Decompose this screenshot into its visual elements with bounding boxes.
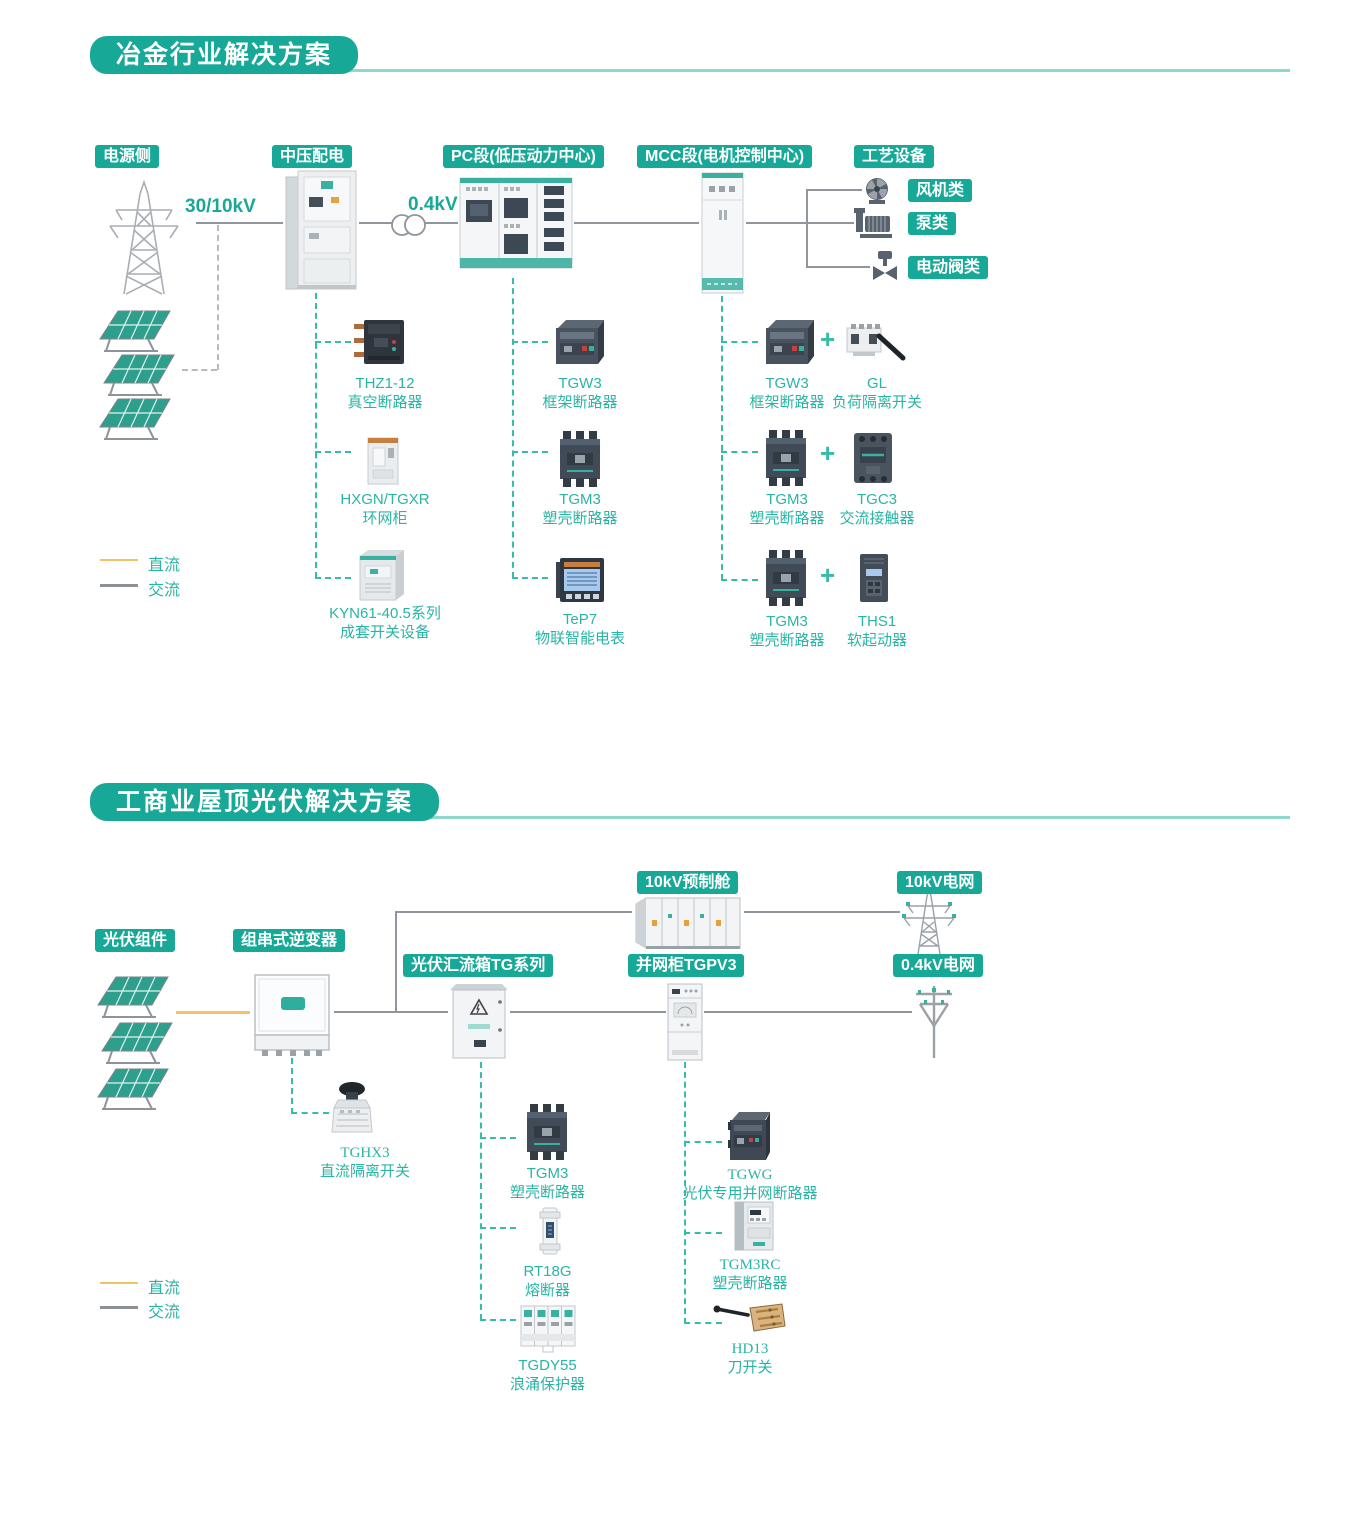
dashed-teal-connector [291,1058,293,1114]
product-model: TeP7 [510,610,650,629]
transformer-symbol [386,212,432,238]
product-label: HXGN/TGXR 环网柜 [320,490,450,528]
product-model: TGM3RC [685,1256,815,1275]
product-desc: 刀开关 [685,1359,815,1378]
dc-wire [176,1011,250,1014]
stage-label-pv-combiner-box: 光伏汇流箱TG系列 [403,954,553,977]
product-model: THS1 [812,612,942,631]
stage-label-grid-connection-cabinet: 并网柜TGPV3 [628,954,744,977]
vacuum-breaker-image [352,318,410,366]
pc-switchgear-image [458,172,574,274]
solar-panel-icon [96,972,174,1020]
ac-wire [746,222,806,224]
product-label: TGM3 塑壳断路器 [480,1164,615,1202]
ac-wire-riser [395,911,397,1011]
solar-panel-icon [102,350,180,398]
legend-dc-label: 直流 [148,1274,180,1298]
soft-starter-image [858,552,890,604]
pv-combiner-box-image [448,980,510,1062]
dashed-teal-connector [315,451,351,453]
product-desc: 负荷隔离开关 [812,393,942,412]
ac-wire [806,266,870,268]
dashed-teal-connector [721,341,758,343]
product-label: THZ1-12 真空断路器 [320,374,450,412]
product-label: TGM3 塑壳断路器 [515,490,645,528]
product-desc: 软起动器 [812,631,942,650]
dashed-gray-connector [217,225,219,370]
frame-breaker-image [552,318,608,366]
ring-main-unit-image [366,434,400,486]
stage-label-mcc-section: MCC段(电机控制中心) [637,145,812,168]
dashed-teal-connector [721,296,723,580]
dashed-teal-connector [315,341,351,343]
product-model: TGM3 [480,1164,615,1183]
dashed-teal-connector [721,579,758,581]
product-label: TGC3 交流接触器 [812,490,942,528]
product-label: TGHX3 直流隔离开关 [300,1144,430,1182]
legend-ac-label: 交流 [148,576,180,600]
dashed-teal-connector [512,278,514,578]
product-label: TGM3RC 塑壳断路器 [685,1256,815,1294]
transmission-tower-icon [88,178,200,296]
motor-valve-icon [870,250,900,284]
legend-ac-label: 交流 [148,1298,180,1322]
ac-wire [704,1011,912,1013]
product-label: TeP7 物联智能电表 [510,610,650,648]
product-model: THZ1-12 [320,374,450,393]
product-model: KYN61-40.5系列 [310,604,460,623]
surge-protector-image [519,1302,577,1354]
product-label: KYN61-40.5系列 成套开关设备 [310,604,460,642]
dashed-teal-connector [684,1232,722,1234]
pump-icon [854,206,894,240]
product-desc: 成套开关设备 [310,623,460,642]
product-label: RT18G 熔断器 [480,1262,615,1300]
ac-contactor-image [852,430,894,486]
legend-dc-label: 直流 [148,551,180,575]
product-desc: 塑壳断路器 [685,1275,815,1294]
product-desc: 塑壳断路器 [515,509,645,528]
knife-switch-image [712,1300,788,1336]
residual-current-breaker-image [731,1200,777,1252]
stage-label-string-inverter: 组串式逆变器 [233,929,345,952]
dashed-gray-connector [182,369,217,371]
stage-label-pc-section: PC段(低压动力中心) [443,145,604,168]
ac-wire [334,1011,448,1013]
solar-panel-icon [100,1018,178,1066]
stage-label-mv-distribution: 中压配电 [272,145,352,168]
product-label: TGW3 框架断路器 [515,374,645,412]
ac-wire [196,222,283,224]
product-model: TGW3 [515,374,645,393]
transmission-tower-icon [900,888,958,956]
dashed-teal-connector [480,1319,516,1321]
stage-label-power-source: 电源侧 [95,145,159,168]
solar-panel-icon [98,306,176,354]
product-model: TGWG [660,1166,840,1185]
ac-wire [510,1011,666,1013]
section1-title-badge: 冶金行业解决方案 [90,36,358,74]
stage-label-10kv-grid: 10kV电网 [897,871,982,894]
product-model: GL [812,374,942,393]
solar-panel-icon [98,394,176,442]
switchgear-set-image [356,548,406,602]
stage-label-prefab-cabin: 10kV预制舱 [637,871,738,894]
mv-switchgear-cabinet-image [283,167,359,293]
plus-sign: + [820,326,835,352]
legend-dc-line [100,559,138,561]
pv-grid-breaker-image [726,1108,774,1166]
ac-wire [806,189,862,191]
product-model: RT18G [480,1262,615,1281]
stage-label-pv-modules: 光伏组件 [95,929,175,952]
product-model: TGC3 [812,490,942,509]
product-model: HD13 [685,1340,815,1359]
legend-ac-line [100,1306,138,1309]
product-model: TGDY55 [480,1356,615,1375]
product-desc: 直流隔离开关 [300,1163,430,1182]
section2-title: 工商业屋顶光伏解决方案 [116,788,413,816]
load-isolation-switch-image [845,320,907,364]
string-inverter-image [250,972,334,1058]
fuse-image [538,1204,562,1258]
brochure-page: 冶金行业解决方案 电源侧 中压配电 PC段(低压动力中心) MCC段(电机控制中… [0,0,1350,1528]
ac-wire [806,222,854,224]
dashed-teal-connector [480,1227,516,1229]
ac-wire [574,222,699,224]
product-desc: 熔断器 [480,1281,615,1300]
plus-sign: + [820,562,835,588]
product-desc: 物联智能电表 [510,629,650,648]
prefab-cabin-image [632,894,744,954]
product-desc: 真空断路器 [320,393,450,412]
product-label: HD13 刀开关 [685,1340,815,1378]
dc-isolator-switch-image [330,1080,374,1134]
equipment-label-valve: 电动阀类 [908,256,988,279]
product-label: TGWG 光伏专用并网断路器 [660,1166,840,1204]
equipment-bracket-line [806,190,808,268]
equipment-label-pump: 泵类 [908,212,956,235]
section2-title-badge: 工商业屋顶光伏解决方案 [90,783,439,821]
equipment-label-fan: 风机类 [908,179,972,202]
product-desc: 浪涌保护器 [480,1375,615,1394]
fan-icon [862,176,892,206]
product-model: TGHX3 [300,1144,430,1163]
product-label: GL 负荷隔离开关 [812,374,942,412]
product-desc: 塑壳断路器 [480,1183,615,1202]
product-model: HXGN/TGXR [320,490,450,509]
product-desc: 环网柜 [320,509,450,528]
dashed-teal-connector [721,451,758,453]
dashed-teal-connector [512,577,548,579]
dashed-teal-connector [684,1141,722,1143]
plus-sign: + [820,440,835,466]
solar-panel-icon [96,1064,174,1112]
dashed-teal-connector [315,577,351,579]
product-desc: 框架断路器 [515,393,645,412]
stage-label-process-equipment: 工艺设备 [854,145,934,168]
smart-meter-image [554,556,606,604]
mcc-cabinet-image [699,170,746,296]
molded-case-breaker-image [558,431,602,487]
grid-connection-cabinet-image [666,982,704,1062]
ac-wire [744,911,900,913]
molded-case-breaker-image [764,550,808,606]
molded-case-breaker-image [524,1104,570,1160]
product-label: TGDY55 浪涌保护器 [480,1356,615,1394]
title-underline [200,69,1290,72]
stage-label-04kv-grid: 0.4kV电网 [893,954,983,977]
dashed-teal-connector [480,1137,516,1139]
legend-dc-line [100,1282,138,1284]
dashed-teal-connector [315,293,317,578]
ac-wire [395,911,632,913]
dashed-teal-connector [291,1112,329,1114]
product-model: TGM3 [515,490,645,509]
product-desc: 交流接触器 [812,509,942,528]
molded-case-breaker-image [764,430,808,486]
frame-breaker-image [762,318,818,366]
product-label: THS1 软起动器 [812,612,942,650]
legend-ac-line [100,584,138,587]
section1-title: 冶金行业解决方案 [116,41,332,69]
utility-pole-icon [912,982,956,1060]
dashed-teal-connector [512,451,548,453]
dashed-teal-connector [512,341,548,343]
